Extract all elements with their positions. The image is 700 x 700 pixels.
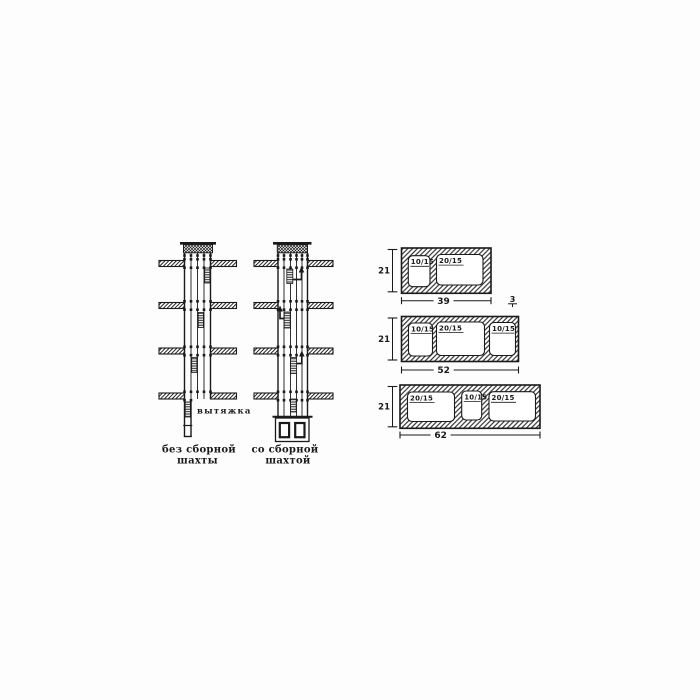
joint-mark xyxy=(301,391,304,394)
joint-mark xyxy=(301,300,304,303)
joint-mark xyxy=(295,266,298,269)
vent-block-sections: 10/1520/152139310/1520/1510/15215220/151… xyxy=(378,248,540,441)
joint-mark xyxy=(301,258,304,261)
joint-mark xyxy=(289,258,292,261)
joint-mark xyxy=(203,266,206,269)
joint-mark xyxy=(196,354,199,357)
joint-mark xyxy=(209,308,212,311)
joint-mark xyxy=(196,308,199,311)
joint-mark xyxy=(183,300,186,303)
vent-block: 10/1520/1521393 xyxy=(378,248,517,307)
ventilation-figure: 10/1520/152139310/1520/1510/15215220/151… xyxy=(0,0,700,700)
shaft-cap xyxy=(184,245,213,253)
floor-slab xyxy=(254,393,278,399)
exhaust-grille xyxy=(185,402,190,417)
exhaust-grille xyxy=(205,268,210,283)
joint-mark xyxy=(306,258,309,261)
joint-mark xyxy=(295,308,298,311)
joint-mark xyxy=(277,346,280,349)
joint-mark xyxy=(295,354,298,357)
joint-mark xyxy=(203,391,206,394)
floor-slab xyxy=(159,348,185,354)
floor-slab xyxy=(159,303,185,309)
joint-mark xyxy=(283,354,286,357)
dim-width-label: 52 xyxy=(437,366,450,376)
joint-mark xyxy=(190,354,193,357)
caption-without-collector-line1: без сборной xyxy=(162,445,236,456)
joint-mark xyxy=(301,346,304,349)
dim-height-label: 21 xyxy=(378,267,390,277)
joint-mark xyxy=(183,391,186,394)
joint-mark xyxy=(209,254,212,257)
opening-size-label: 20/15 xyxy=(410,394,433,402)
joint-mark xyxy=(283,258,286,261)
joint-mark xyxy=(306,254,309,257)
joint-mark xyxy=(295,258,298,261)
joint-mark xyxy=(289,354,292,357)
floor-slab xyxy=(308,348,334,354)
vent-block: 20/1510/1520/152162 xyxy=(378,385,540,441)
dim-width-label: 62 xyxy=(434,431,447,441)
floor-slab xyxy=(308,393,334,399)
floor-slab xyxy=(308,261,334,267)
joint-mark xyxy=(209,258,212,261)
joint-mark xyxy=(190,300,193,303)
wall-thickness-label: 3 xyxy=(510,295,516,304)
joint-mark xyxy=(203,346,206,349)
floor-slab xyxy=(254,303,278,309)
dim-height-label: 21 xyxy=(378,335,390,345)
caption-without-collector-line2: шахты xyxy=(177,456,218,467)
joint-mark xyxy=(301,308,304,311)
vent-block: 10/1520/1510/152152 xyxy=(378,317,518,377)
joint-mark xyxy=(196,346,199,349)
joint-mark xyxy=(277,254,280,257)
branch-grille xyxy=(287,269,293,284)
joint-mark xyxy=(277,354,280,357)
joint-mark xyxy=(301,254,304,257)
joint-mark xyxy=(190,308,193,311)
joint-mark xyxy=(295,346,298,349)
floor-slab xyxy=(159,261,185,267)
joint-mark xyxy=(209,300,212,303)
joint-mark xyxy=(277,399,280,402)
joint-mark xyxy=(203,308,206,311)
floor-slab xyxy=(308,303,334,309)
joint-mark xyxy=(277,391,280,394)
joint-mark xyxy=(301,399,304,402)
joint-mark xyxy=(190,254,193,257)
joint-mark xyxy=(183,254,186,257)
joint-mark xyxy=(196,266,199,269)
joint-mark xyxy=(283,391,286,394)
exhaust-label: вытяжка xyxy=(197,407,252,417)
branch-grille xyxy=(291,399,297,412)
joint-mark xyxy=(277,300,280,303)
shaft-cap xyxy=(277,245,307,253)
exhaust-grille xyxy=(192,358,197,373)
joint-mark xyxy=(190,266,193,269)
joint-mark xyxy=(306,391,309,394)
floor-slab xyxy=(254,348,278,354)
floor-slab xyxy=(159,393,185,399)
branch-grille xyxy=(284,312,290,328)
joint-mark xyxy=(190,258,193,261)
joint-mark xyxy=(289,300,292,303)
joint-mark xyxy=(306,300,309,303)
air-flow-arrow xyxy=(293,272,302,280)
joint-mark xyxy=(203,254,206,257)
exhaust-grille xyxy=(198,313,203,328)
shaft-with-collector xyxy=(273,253,313,442)
joint-mark xyxy=(283,346,286,349)
joint-mark xyxy=(183,399,186,402)
joint-mark xyxy=(295,254,298,257)
collector-cell xyxy=(295,423,304,437)
joint-mark xyxy=(277,258,280,261)
joint-mark xyxy=(203,354,206,357)
opening-size-label: 10/15 xyxy=(411,325,434,333)
joint-mark xyxy=(283,308,286,311)
joint-mark xyxy=(190,346,193,349)
collector-cell xyxy=(280,423,289,437)
joint-mark xyxy=(209,391,212,394)
dim-width-label: 39 xyxy=(437,297,450,307)
joint-mark xyxy=(306,266,309,269)
joint-mark xyxy=(209,266,212,269)
joint-mark xyxy=(289,346,292,349)
scanned-figure-page: 10/1520/152139310/1520/1510/15215220/151… xyxy=(0,0,700,700)
joint-mark xyxy=(289,391,292,394)
joint-mark xyxy=(183,308,186,311)
joint-mark xyxy=(295,300,298,303)
joint-mark xyxy=(183,354,186,357)
joint-mark xyxy=(289,254,292,257)
floor-slab xyxy=(211,348,237,354)
joint-mark xyxy=(283,399,286,402)
caption-with-collector-line2: шахтой xyxy=(265,456,311,467)
joint-mark xyxy=(203,258,206,261)
joint-mark xyxy=(306,354,309,357)
air-flow-arrow xyxy=(297,356,302,364)
floor-slab xyxy=(211,261,237,267)
joint-mark xyxy=(183,258,186,261)
opening-size-label: 20/15 xyxy=(439,257,462,265)
floor-slab xyxy=(211,393,237,399)
joint-mark xyxy=(283,300,286,303)
air-flow-arrowhead xyxy=(299,351,305,357)
joint-mark xyxy=(306,346,309,349)
dim-height-label: 21 xyxy=(378,403,390,413)
joint-mark xyxy=(209,346,212,349)
air-flow-arrowhead xyxy=(299,267,305,273)
joint-mark xyxy=(183,266,186,269)
joint-mark xyxy=(190,391,193,394)
opening-size-label: 10/15 xyxy=(464,393,487,401)
opening-size-label: 20/15 xyxy=(439,324,462,332)
joint-mark xyxy=(196,391,199,394)
joint-mark xyxy=(196,258,199,261)
joint-mark xyxy=(183,346,186,349)
joint-mark xyxy=(295,391,298,394)
joint-mark xyxy=(283,254,286,257)
joint-mark xyxy=(196,300,199,303)
air-flow-arrow xyxy=(280,311,284,319)
opening-size-label: 10/15 xyxy=(492,325,515,333)
floor-slab xyxy=(254,261,278,267)
floor-slab xyxy=(211,303,237,309)
joint-mark xyxy=(283,266,286,269)
joint-mark xyxy=(190,399,193,402)
joint-mark xyxy=(203,300,206,303)
joint-mark xyxy=(196,254,199,257)
opening-size-label: 20/15 xyxy=(492,394,515,402)
joint-mark xyxy=(209,354,212,357)
joint-mark xyxy=(289,308,292,311)
branch-grille xyxy=(291,358,297,374)
joint-mark xyxy=(277,266,280,269)
caption-with-collector-line1: со сборной xyxy=(251,445,318,456)
joint-mark xyxy=(306,308,309,311)
joint-mark xyxy=(306,399,309,402)
opening-size-label: 10/15 xyxy=(411,258,434,266)
